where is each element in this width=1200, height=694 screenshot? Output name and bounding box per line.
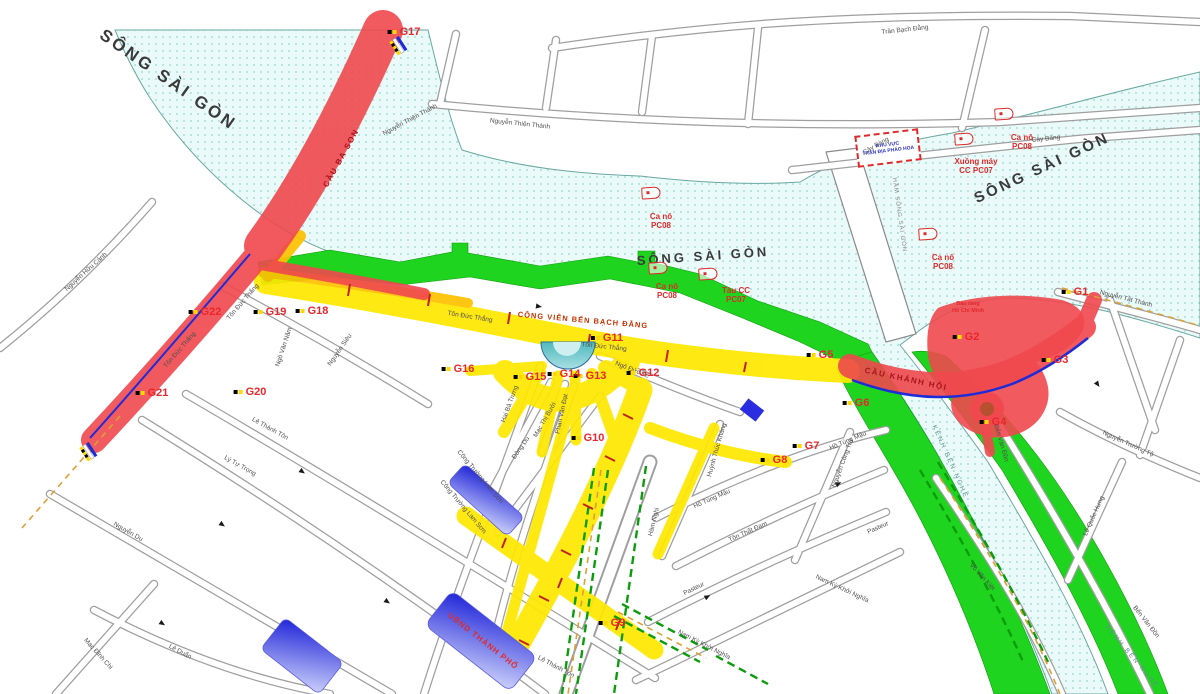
- checkpoint-id: G12: [639, 367, 660, 379]
- checkpoint-barrier-icon: [548, 372, 552, 376]
- tunnel-label: HẦM SÔNG SÀI GÒN: [891, 177, 907, 252]
- street-name-label: Trần Bạch Đằng: [881, 24, 929, 36]
- checkpoint-barrier-icon: [442, 367, 446, 371]
- checkpoint-barrier-icon: [843, 401, 847, 405]
- bridge-label: CẦU BA SON: [321, 127, 361, 189]
- street-name-label: Tôn Đức Thắng: [162, 331, 197, 370]
- checkpoint-barrier-icon: [574, 374, 578, 378]
- checkpoint-id: G15: [526, 371, 547, 383]
- checkpoint-id: G20: [246, 386, 267, 398]
- checkpoint-id: G18: [308, 305, 329, 317]
- checkpoint-g15: G15: [514, 371, 547, 383]
- street-name-label: Hồ Tùng Mậu: [693, 488, 732, 510]
- street-name-label: Huỳnh Thúc Kháng: [706, 422, 728, 477]
- street-name-label: Bến Vân Đồn: [1131, 605, 1160, 640]
- street-name-label: Hồ Tùng Mậu: [829, 430, 868, 452]
- checkpoint-barrier-icon: [1042, 358, 1046, 362]
- checkpoint-id: G3: [1054, 354, 1069, 366]
- canal-label: KÊNH BẾN NGHÉ: [1104, 624, 1161, 690]
- street-name-label: Pasteur: [866, 520, 889, 536]
- checkpoint-g18: G18: [296, 305, 329, 317]
- checkpoint-g9: G9: [599, 617, 626, 629]
- checkpoint-g12: G12: [627, 367, 660, 379]
- river-name-label: SÔNG SÀI GÒN: [96, 25, 241, 135]
- checkpoint-barrier-icon: [296, 309, 300, 313]
- checkpoint-g13: G13: [574, 370, 607, 382]
- street-name-label: Lê Quốc Hưng: [1082, 495, 1106, 537]
- street-name-label: Lý Tự Trọng: [223, 454, 257, 477]
- boat-icon: [641, 186, 661, 199]
- bridge-label: CẦU KHÁNH HỘI: [864, 366, 948, 392]
- boat-icon: [918, 227, 938, 240]
- street-name-label: Nam Kỳ Khởi Nghĩa: [677, 629, 732, 661]
- checkpoint-id: G8: [773, 454, 788, 466]
- checkpoint-g17: G17: [388, 26, 421, 38]
- checkpoint-barrier-icon: [254, 310, 258, 314]
- checkpoint-id: G9: [611, 617, 626, 629]
- traffic-map: KHU VỰC TRẬN ĐỊA PHÁO HOA UBND THÀNH PHỐ…: [0, 0, 1200, 694]
- street-name-label: Cây Bàng: [1031, 134, 1060, 144]
- checkpoint-g3: G3: [1042, 354, 1069, 366]
- checkpoint-g7: G7: [793, 440, 820, 452]
- checkpoint-barrier-icon: [1062, 290, 1066, 294]
- street-name-label: Pasteur: [682, 581, 705, 597]
- street-name-label: Hàm Nghi: [647, 507, 661, 537]
- checkpoint-barrier-icon: [953, 335, 957, 339]
- checkpoint-id: G22: [201, 306, 222, 318]
- poi-label: Bảo tàng: [956, 301, 980, 307]
- street-name-label: Nguyễn Thiện Thành: [490, 117, 551, 130]
- street-name-label: Công Trường Lam Sơn: [439, 479, 488, 535]
- street-name-label: Nam Kỳ Khởi Nghĩa: [814, 574, 869, 605]
- street-name-label: Nguyễn Siêu: [326, 333, 353, 368]
- boat-icon: [954, 132, 974, 145]
- checkpoint-barrier-icon: [980, 420, 984, 424]
- checkpoint-barrier-icon: [388, 30, 392, 34]
- checkpoint-barrier-icon: [189, 310, 193, 314]
- checkpoint-id: G14: [560, 368, 581, 380]
- street-name-label: Ngô Đức Kế: [614, 360, 650, 380]
- checkpoint-id: G19: [266, 306, 287, 318]
- checkpoint-id: G5: [819, 349, 834, 361]
- street-name-label: Tôn Thất Đạm: [728, 520, 769, 543]
- street-name-label: Tôn Đức Thắng: [581, 341, 627, 353]
- boat-caption: Xuồng máyCC PC07: [954, 157, 997, 175]
- street-name-label: Lê Thánh Tôn: [537, 654, 576, 679]
- boat-icon: [994, 107, 1014, 120]
- checkpoint-barrier-icon: [234, 390, 238, 394]
- street-name-label: Công Trường Lam Sơn: [456, 449, 505, 505]
- street-name-label: Nguyễn Trường Tộ: [1101, 430, 1154, 459]
- river-name-label: SÔNG SÀI GÒN: [971, 129, 1112, 207]
- checkpoint-id: G21: [148, 387, 169, 399]
- checkpoint-id: G10: [584, 432, 605, 444]
- checkpoint-barrier-icon: [807, 353, 811, 357]
- street-name-label: Mạc Đĩnh Chi: [82, 637, 114, 671]
- checkpoint-g22: G22: [189, 306, 222, 318]
- street-name-label: Nguyễn Công Trứ: [831, 438, 855, 489]
- fireworks-zone-box: KHU VỰC TRẬN ĐỊA PHÁO HOA: [854, 128, 921, 168]
- checkpoint-barrier-icon: [514, 375, 518, 379]
- street-name-label: Lê Duẩn: [168, 643, 193, 661]
- boat-caption: Ca nôPC08: [656, 282, 678, 300]
- boat-caption: Tàu CCPC07: [722, 286, 750, 304]
- checkpoint-barrier-icon: [591, 336, 595, 340]
- checkpoint-id: G16: [454, 363, 475, 375]
- checkpoint-id: G11: [603, 332, 623, 344]
- checkpoint-g8: G8: [761, 454, 788, 466]
- street-name-label: Mạc Thị Bưởi: [532, 401, 558, 438]
- boat-caption: Ca nôPC08: [650, 212, 672, 230]
- boat-icon: [698, 267, 718, 280]
- street-name-label: Nguyễn Du: [112, 521, 144, 543]
- street-name-label: Tôn Đức Thắng: [225, 283, 260, 322]
- street-name-label: Bến Vân Đồn: [992, 423, 1009, 462]
- street-name-label: Ngô Văn Năm: [274, 327, 293, 368]
- canal-label: KÊNH BẾN NGHÉ: [931, 424, 970, 500]
- street-name-label: Nguyễn Hữu Cảnh: [64, 251, 109, 292]
- checkpoint-g1: G1: [1062, 286, 1089, 298]
- checkpoint-id: G4: [992, 416, 1007, 428]
- checkpoint-id: G13: [586, 370, 607, 382]
- boat-icon: [648, 261, 668, 274]
- boat-caption: Ca nôPC08: [932, 253, 954, 271]
- checkpoint-id: G1: [1074, 286, 1089, 298]
- street-name-label: Đông Du: [511, 435, 531, 460]
- checkpoint-g21: G21: [136, 387, 169, 399]
- boat-caption: Ca nôPC08: [1011, 133, 1033, 151]
- checkpoint-g2: G2: [953, 331, 980, 343]
- checkpoint-barrier-icon: [599, 621, 603, 625]
- checkpoint-barrier-icon: [627, 371, 631, 375]
- street-name-label: Tôn Đức Thắng: [447, 310, 493, 324]
- street-name-label: Lê Thánh Tôn: [251, 416, 290, 442]
- checkpoint-g11: G11: [591, 332, 623, 344]
- checkpoint-barrier-icon: [572, 436, 576, 440]
- street-name-label: Nguyễn Tất Thành: [1099, 289, 1153, 309]
- checkpoint-g14: G14: [548, 368, 581, 380]
- checkpoint-g16: G16: [442, 363, 475, 375]
- park-label: CÔNG VIÊN BẾN BẠCH ĐẰNG: [517, 310, 648, 330]
- checkpoint-id: G2: [965, 331, 980, 343]
- checkpoint-barrier-icon: [761, 458, 765, 462]
- street-name-label: Võ Văn Kiệt: [968, 562, 996, 592]
- checkpoint-g4: G4: [980, 416, 1007, 428]
- checkpoint-id: G6: [855, 397, 870, 409]
- street-name-label: Nguyễn Thiện Thành: [382, 103, 439, 138]
- checkpoint-barrier-icon: [793, 444, 797, 448]
- street-name-label: Phan Văn Đạt: [554, 393, 569, 434]
- checkpoint-id: G7: [805, 440, 820, 452]
- checkpoint-g6: G6: [843, 397, 870, 409]
- checkpoint-g20: G20: [234, 386, 267, 398]
- checkpoint-g19: G19: [254, 306, 287, 318]
- checkpoint-id: G17: [400, 26, 421, 38]
- street-name-label: Hai Bà Trưng: [500, 385, 520, 424]
- checkpoint-barrier-icon: [136, 391, 140, 395]
- checkpoint-g5: G5: [807, 349, 834, 361]
- ubnd-building-label: UBND THÀNH PHỐ: [446, 611, 520, 672]
- label-layer: KHU VỰC TRẬN ĐỊA PHÁO HOA UBND THÀNH PHỐ…: [0, 0, 1200, 694]
- poi-label: Hồ Chí Minh: [952, 308, 984, 314]
- checkpoint-g10: G10: [572, 432, 605, 444]
